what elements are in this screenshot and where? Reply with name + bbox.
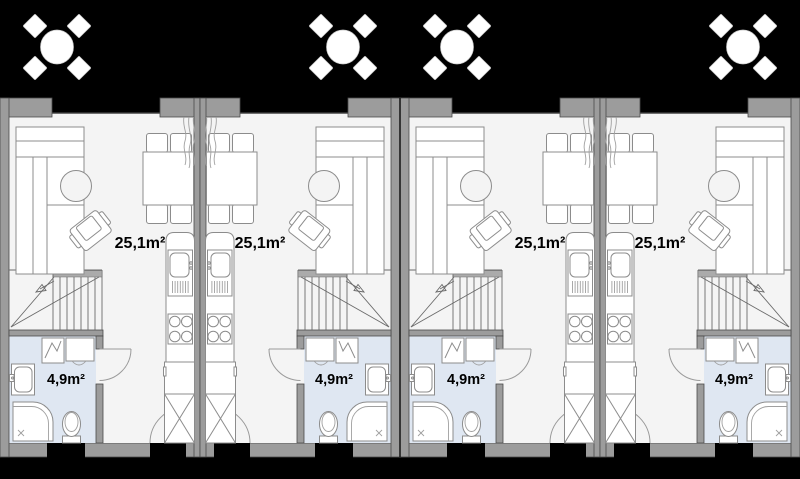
floorplan-canvas: 25,1m² 25,1m² 25,1m² 25,1m² 4,9m² 4,9m² …: [0, 0, 800, 479]
unit-4-living-area-label: 25,1m²: [635, 235, 686, 252]
unit-2-bathroom-area-label: 4,9m²: [315, 372, 353, 388]
unit-1-bathroom-area-label: 4,9m²: [47, 372, 85, 388]
party-wall-joint: [399, 98, 401, 457]
unit-3-bathroom-area-label: 4,9m²: [447, 372, 485, 388]
unit-1-living-area-label: 25,1m²: [115, 235, 166, 252]
unit-2-living-area-label: 25,1m²: [235, 235, 286, 252]
unit-3-living-area-label: 25,1m²: [515, 235, 566, 252]
floorplan-page: 25,1m² 25,1m² 25,1m² 25,1m² 4,9m² 4,9m² …: [0, 0, 800, 479]
unit-4-bathroom-area-label: 4,9m²: [715, 372, 753, 388]
